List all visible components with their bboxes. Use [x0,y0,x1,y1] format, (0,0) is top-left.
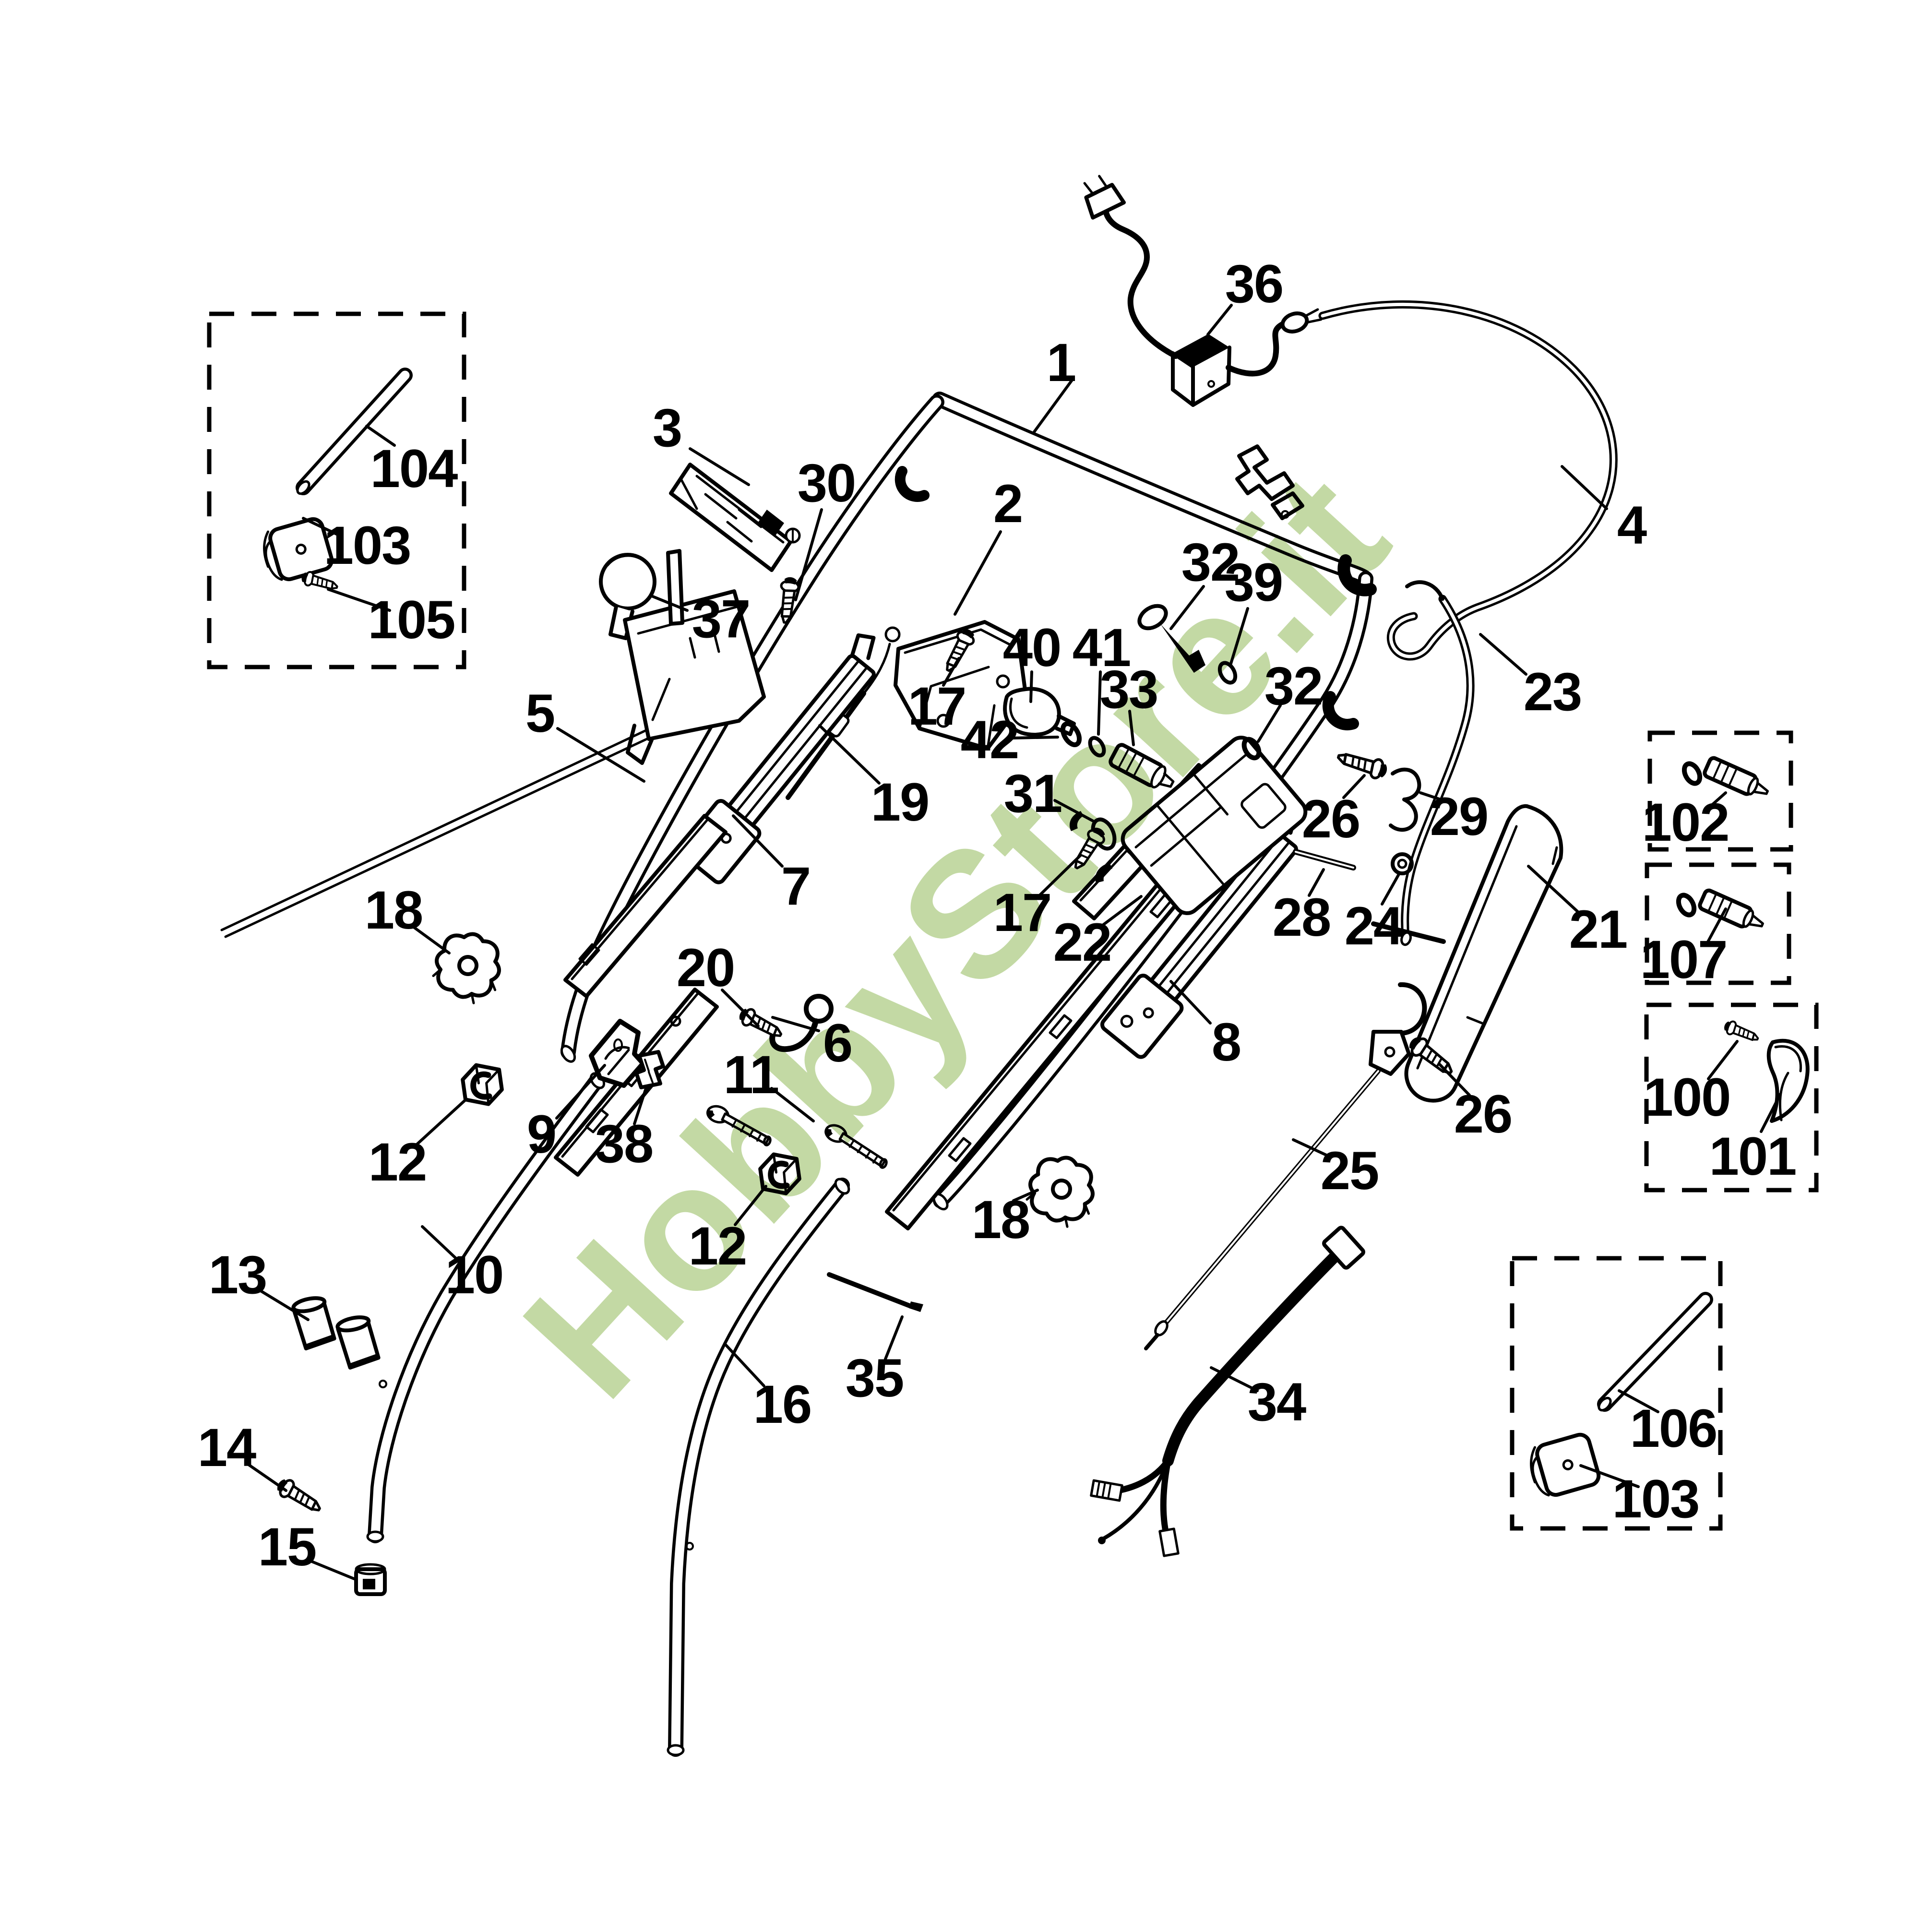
clip-15 [356,1564,385,1594]
part-number: 103 [324,515,411,575]
leader-line [310,1561,354,1579]
exploded-diagram-canvas: 1363302374233239404133423231171975172226… [0,0,1932,1932]
screw-100 [1722,1019,1760,1045]
part-number: 101 [1709,1126,1796,1186]
part-number: 29 [1430,787,1488,847]
part-number: 40 [1003,618,1061,678]
part-number: 13 [209,1245,267,1305]
cable-clip-13a [292,1295,335,1349]
star-knob-18a [429,928,505,1007]
part-number: 1 [1047,333,1075,393]
part-label-14: 14 [198,1418,286,1491]
part-number: 4 [1617,495,1647,555]
handle-clip-12a [461,1062,504,1107]
pin-28 [1296,852,1353,868]
part-label-23: 23 [1480,634,1581,722]
part-number: 19 [871,772,929,832]
bail-cable [1146,985,1424,1348]
part-number: 25 [1321,1141,1379,1201]
part-label-100: 100 [1644,1041,1737,1127]
part-number: 106 [1630,1398,1717,1458]
lever-101 [1769,1041,1808,1121]
part-label-2: 2 [955,474,1022,614]
part-label-28: 28 [1273,870,1331,947]
part-number: 20 [677,938,735,998]
leader-line [1480,634,1526,674]
part-label-26: 26 [1302,775,1364,849]
part-label-24: 24 [1345,873,1403,956]
part-label-25: 25 [1293,1140,1378,1201]
clip-38 [636,1052,663,1087]
part-number: 18 [365,880,423,940]
leader-line [820,726,879,783]
part-number: 104 [370,439,458,499]
part-number: 16 [753,1374,811,1434]
washer-24 [1393,854,1412,873]
part-number: 23 [1524,662,1582,722]
part-number: 26 [1302,789,1360,849]
inset-107 [1675,889,1766,934]
battery-charger [1078,171,1322,405]
leader-line [955,532,1001,614]
spring-clip-29 [1391,770,1419,830]
charger-plug [1280,306,1322,334]
part-label-29: 29 [1420,787,1488,847]
part-number: 14 [198,1418,256,1478]
part-number: 24 [1345,896,1403,956]
upper-bracket [671,465,799,570]
part-number: 102 [1642,792,1729,852]
part-label-26: 26 [1440,1064,1512,1144]
parts-diagram-page: 1363302374233239404133423231171975172226… [0,0,1932,1932]
part-label-16: 16 [725,1344,811,1434]
part-label-12: 12 [369,1100,465,1192]
part-label-104: 104 [367,426,458,499]
part-label-1: 1 [1034,333,1075,432]
leader-line [1562,466,1607,509]
part-number: 34 [1248,1372,1306,1432]
part-number: 28 [1273,887,1331,947]
part-label-102: 102 [1642,792,1729,852]
part-label-19: 19 [820,726,929,832]
cable-tie [829,1275,923,1312]
part-number: 100 [1644,1067,1730,1127]
part-label-18: 18 [972,1190,1038,1250]
power-plug [1078,171,1124,217]
handle-clamp-ring [1328,697,1353,725]
part-number: 105 [368,590,455,650]
part-number: 12 [369,1132,427,1192]
part-number: 18 [972,1190,1030,1250]
part-number: 21 [1569,899,1627,959]
part-number: 30 [798,453,856,513]
part-number: 36 [1225,254,1283,314]
part-number: 35 [846,1348,904,1408]
part-number: 17 [908,676,966,736]
screw-14 [274,1476,324,1516]
part-label-5: 5 [525,683,644,781]
part-label-106: 106 [1619,1391,1717,1458]
wiring-harness [1091,1227,1365,1556]
part-label-15: 15 [258,1517,354,1579]
part-number: 37 [692,589,750,649]
part-number: 2 [993,474,1022,534]
part-number: 103 [1612,1469,1699,1529]
cable-clip-13b [336,1314,379,1368]
part-number: 26 [1454,1084,1512,1144]
part-label-35: 35 [846,1317,904,1408]
part-label-21: 21 [1528,866,1627,959]
part-number: 3 [653,398,681,458]
part-number: 107 [1640,930,1727,990]
part-number: 8 [1212,1012,1240,1072]
part-number: 15 [258,1517,316,1577]
part-label-105: 105 [328,589,454,650]
part-label-18: 18 [365,880,449,953]
part-number: 9 [527,1104,556,1164]
part-number: 5 [525,683,554,743]
part-label-36: 36 [1208,254,1283,334]
part-label-107: 107 [1640,909,1727,990]
part-number: 7 [781,856,810,916]
